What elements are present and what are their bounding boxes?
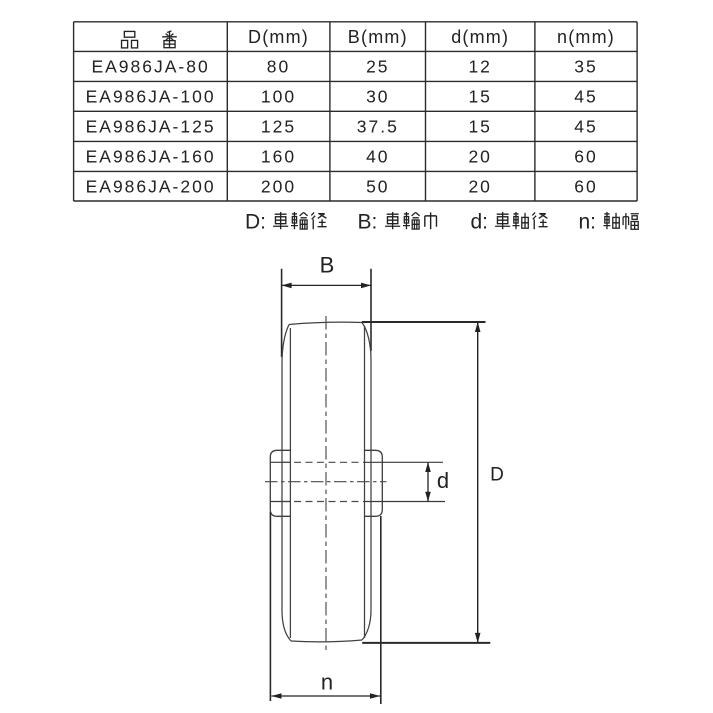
svg-text:D: D: [490, 465, 504, 486]
svg-text:12: 12: [468, 57, 491, 77]
svg-text:EA986JA-160: EA986JA-160: [86, 147, 216, 167]
svg-text:80: 80: [267, 57, 290, 77]
svg-text:B:: B:: [358, 211, 378, 234]
svg-text:45: 45: [574, 117, 597, 137]
svg-text:D:: D:: [245, 211, 266, 234]
svg-text:20: 20: [468, 177, 491, 197]
svg-text:B(mm): B(mm): [348, 27, 408, 47]
svg-text:B: B: [320, 253, 335, 278]
svg-text:n(mm): n(mm): [557, 27, 615, 47]
svg-text:EA986JA-200: EA986JA-200: [86, 177, 216, 197]
svg-text:n:: n:: [579, 211, 597, 234]
svg-text:d:: d:: [471, 211, 489, 234]
svg-text:15: 15: [468, 117, 491, 137]
svg-text:60: 60: [574, 177, 597, 197]
svg-text:60: 60: [574, 147, 597, 167]
svg-text:200: 200: [261, 177, 296, 197]
svg-text:35: 35: [574, 57, 597, 77]
svg-text:20: 20: [468, 147, 491, 167]
svg-text:D(mm): D(mm): [248, 27, 309, 47]
svg-text:125: 125: [261, 117, 296, 137]
svg-text:30: 30: [366, 87, 389, 107]
svg-text:EA986JA-125: EA986JA-125: [86, 117, 216, 137]
svg-text:25: 25: [366, 57, 389, 77]
svg-text:50: 50: [366, 177, 389, 197]
svg-text:45: 45: [574, 87, 597, 107]
svg-text:EA986JA-100: EA986JA-100: [86, 87, 216, 107]
svg-text:EA986JA-80: EA986JA-80: [91, 57, 209, 77]
svg-text:15: 15: [468, 87, 491, 107]
svg-text:d(mm): d(mm): [451, 27, 509, 47]
svg-text:n: n: [321, 670, 333, 695]
svg-text:40: 40: [366, 147, 389, 167]
svg-text:37.5: 37.5: [357, 117, 399, 137]
svg-text:100: 100: [261, 87, 296, 107]
svg-text:160: 160: [261, 147, 296, 167]
svg-text:d: d: [437, 468, 449, 493]
